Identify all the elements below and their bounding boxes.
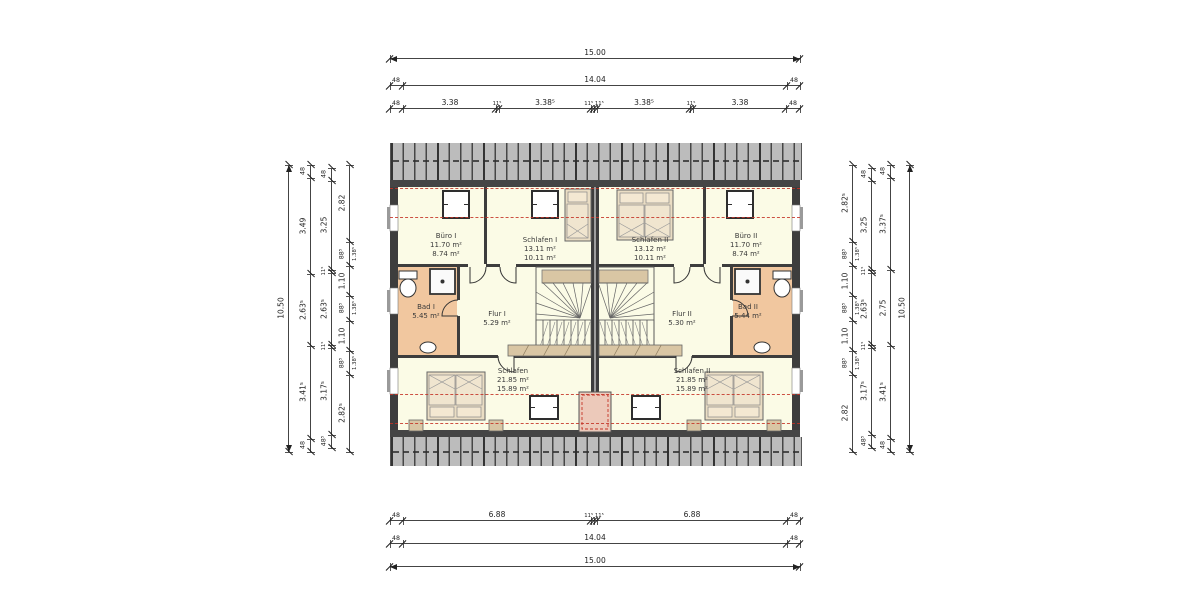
stair-line — [553, 283, 580, 318]
dim-chain-right-inner — [871, 168, 872, 448]
bed-pillow — [708, 407, 732, 417]
bed-pillow — [735, 407, 759, 417]
dim-label: 88⁵ — [339, 303, 346, 314]
dim-label: 3.49 — [299, 218, 308, 235]
room-label-flur-1: Flur I 5.29 m² — [483, 310, 510, 328]
floor-plan-canvas: Büro I 11.70 m² 8.74 m² Schlafen I 13.11… — [0, 0, 1200, 600]
room-area-floor: 21.85 m² — [674, 376, 711, 385]
dim-label: 48 — [880, 167, 887, 175]
dim-label: 48 — [300, 441, 307, 449]
dim-chain-right-detail — [852, 165, 853, 452]
dim-label: 88⁵ — [339, 358, 346, 369]
room-label-flur-2: Flur II 5.30 m² — [668, 310, 695, 328]
dim-label-secondary: 1.38⁵ — [352, 356, 358, 370]
dim-label: 48 — [392, 535, 400, 542]
dim-label: 3.41⁵ — [299, 382, 308, 402]
dim-arrow-top — [286, 165, 292, 172]
stair-line — [610, 283, 647, 318]
bed-pillow — [646, 193, 669, 203]
room-area-floor: 13.11 m² — [523, 245, 557, 254]
window-sill — [387, 370, 390, 392]
window-sill — [800, 290, 803, 312]
dim-label: 15.00 — [584, 556, 605, 565]
bed-mattress — [429, 375, 455, 405]
room-name: Flur II — [668, 310, 695, 319]
dim-label: 2.63⁵ — [860, 299, 869, 319]
wc-tank — [399, 271, 417, 279]
dim-label: 3.38⁵ — [634, 98, 654, 107]
wall — [692, 355, 792, 358]
stair-rect — [599, 270, 648, 283]
room-name: Schlafen II — [674, 367, 711, 376]
dim-label: 1.10 — [338, 273, 347, 290]
dim-label: 48 — [392, 100, 400, 107]
door-swing — [500, 267, 516, 283]
dim-label: 11⁵ 11⁵ — [584, 101, 603, 107]
window-sill — [800, 370, 803, 392]
dim-label: 48 — [392, 512, 400, 519]
dim-label: 48 — [790, 535, 798, 542]
dim-label: 11⁵ — [493, 101, 502, 107]
dim-label: 15.00 — [584, 48, 605, 57]
wall — [722, 264, 792, 267]
dim-label: 2.82⁵ — [338, 403, 347, 423]
dim-label: 88⁵ — [842, 358, 849, 369]
dim-label: 3.38⁵ — [535, 98, 555, 107]
window-sill — [387, 290, 390, 312]
wall — [730, 316, 733, 355]
dim-chain-left-inner — [331, 168, 332, 448]
dim-label: 6.88 — [489, 510, 506, 519]
dim-label: 48 — [392, 77, 400, 84]
staircase-right — [599, 267, 654, 355]
dim-label: 48 — [789, 100, 797, 107]
dim-label: 48 — [300, 167, 307, 175]
room-area-living: 8.74 m² — [730, 250, 762, 259]
room-label-schlafen-bottom-right: Schlafen II 21.85 m² 15.89 m² — [674, 367, 711, 394]
dim-chain-bottom-total — [390, 566, 800, 567]
dim-chain-left-detail — [349, 165, 350, 452]
room-area-living: 10.11 m² — [632, 254, 669, 263]
dim-chain-left-total — [288, 165, 289, 452]
room-label-schlafen-bottom-left: Schlafen 21.85 m² 15.89 m² — [497, 367, 529, 394]
room-area-floor: 5.45 m² — [412, 312, 439, 321]
bed-mattress — [619, 205, 644, 237]
gable-window — [390, 205, 398, 231]
washbasin — [754, 342, 770, 353]
dim-label-secondary: 1.38⁵ — [352, 301, 358, 315]
dim-label: 11⁵ — [321, 267, 327, 276]
dim-label: 2.75 — [879, 300, 888, 317]
dim-label: 3.38 — [732, 98, 749, 107]
dim-label: 10.50 — [898, 297, 907, 318]
dim-label: 48⁵ — [861, 436, 868, 447]
wall — [690, 264, 704, 267]
wall — [398, 355, 498, 358]
room-area-living: 8.74 m² — [430, 250, 462, 259]
bed-mattress — [707, 375, 733, 405]
room-label-bad-2: Bad II 5.44 m² — [734, 303, 761, 321]
room-area-living: 15.89 m² — [674, 385, 711, 394]
dim-label: 6.88 — [684, 510, 701, 519]
shower-drain — [441, 280, 445, 284]
dim-label: 48 — [790, 77, 798, 84]
bed-pillow — [457, 407, 481, 417]
room-name: Schlafen — [497, 367, 529, 376]
dim-label: 11⁵ — [687, 101, 696, 107]
wall — [457, 267, 460, 300]
room-name: Büro I — [430, 232, 462, 241]
room-area-floor: 13.12 m² — [632, 245, 669, 254]
wc-bowl — [774, 279, 790, 297]
window-sill — [387, 207, 390, 229]
door-swing — [442, 300, 458, 316]
dim-label: 3.17⁵ — [860, 381, 869, 401]
dim-label: 88⁵ — [842, 249, 849, 260]
stair-line — [610, 283, 637, 318]
dim-label: 1.10 — [841, 328, 850, 345]
bed-mattress — [645, 205, 670, 237]
dim-label-secondary: 1.38⁵ — [855, 356, 861, 370]
room-area-floor: 11.70 m² — [730, 241, 762, 250]
room-area-floor: 5.29 m² — [483, 319, 510, 328]
bed-mattress — [734, 375, 760, 405]
wall — [457, 316, 460, 355]
dim-label: 3.37⁵ — [879, 214, 888, 234]
washbasin — [420, 342, 436, 353]
room-name: Büro II — [730, 232, 762, 241]
staircase-left — [536, 267, 591, 355]
dim-label: 11⁵ — [861, 342, 867, 351]
bed-pillow — [430, 407, 454, 417]
gable-window — [792, 288, 800, 314]
dim-label: 2.82⁵ — [841, 193, 850, 213]
dim-label: 11⁵ — [321, 342, 327, 351]
bed-mattress — [567, 204, 588, 238]
wall — [398, 264, 468, 267]
dim-label-secondary: 1.38⁵ — [855, 247, 861, 261]
dim-chain-right-rooms — [890, 165, 891, 452]
wall — [703, 187, 706, 264]
dim-chain-top-total — [390, 58, 800, 59]
room-name: Schlafen II — [632, 236, 669, 245]
wc-tank — [773, 271, 791, 279]
dim-label: 2.82 — [338, 195, 347, 212]
dim-arrow-left — [390, 56, 397, 62]
wall — [730, 267, 733, 300]
dim-chain-top-shell — [390, 85, 800, 86]
window-sill — [800, 207, 803, 229]
sideboard — [599, 345, 682, 356]
dim-label: 2.63⁵ — [299, 300, 308, 320]
room-label-schlafen-1: Schlafen I 13.11 m² 10.11 m² — [523, 236, 557, 263]
door-swing — [674, 267, 690, 283]
dim-label: 3.25 — [860, 217, 869, 234]
roof-height-dashed-line — [390, 394, 800, 395]
room-name: Flur I — [483, 310, 510, 319]
room-name: Bad II — [734, 303, 761, 312]
dim-label: 3.25 — [320, 217, 329, 234]
dim-label: 88⁵ — [339, 249, 346, 260]
room-label-schlafen-2: Schlafen II 13.12 m² 10.11 m² — [632, 236, 669, 263]
dim-label: 1.10 — [338, 328, 347, 345]
shower-drain — [746, 280, 750, 284]
dim-label: 48 — [790, 512, 798, 519]
room-area-floor: 11.70 m² — [430, 241, 462, 250]
dim-label: 14.04 — [584, 533, 605, 542]
dim-label: 48 — [321, 170, 328, 178]
wall — [484, 187, 487, 264]
dim-arrow-right — [793, 564, 800, 570]
room-area-floor: 5.44 m² — [734, 312, 761, 321]
dim-chain-bottom-shell — [390, 543, 800, 544]
dim-label: 10.50 — [277, 297, 286, 318]
room-label-buero-1: Büro I 11.70 m² 8.74 m² — [430, 232, 462, 259]
roof-height-dashed-line — [390, 423, 800, 424]
dim-chain-left-rooms — [310, 165, 311, 452]
room-area-living: 15.89 m² — [497, 385, 529, 394]
door-swing — [470, 267, 486, 283]
dim-label: 2.63⁵ — [320, 299, 329, 319]
room-area-floor: 5.30 m² — [668, 319, 695, 328]
room-label-bad-1: Bad I 5.45 m² — [412, 303, 439, 321]
dim-arrow-top — [907, 165, 913, 172]
sideboard — [508, 345, 591, 356]
bed-pillow — [568, 192, 587, 202]
dim-label-secondary: 1.38⁵ — [352, 247, 358, 261]
door-swing — [704, 267, 720, 283]
dim-arrow-bottom — [286, 445, 292, 452]
plan-drawing — [0, 0, 1200, 600]
gable-window — [792, 205, 800, 231]
dim-label: 88⁵ — [842, 303, 849, 314]
dim-label: 11⁵ 11⁵ — [584, 513, 603, 519]
dim-label: 3.41⁵ — [879, 382, 888, 402]
wc-bowl — [400, 279, 416, 297]
wall — [486, 264, 500, 267]
roof-height-dashed-line — [390, 217, 800, 218]
gable-window — [390, 368, 398, 394]
roof-height-dashed-line — [390, 188, 800, 189]
dim-label: 48⁵ — [321, 436, 328, 447]
bed-mattress — [456, 375, 482, 405]
chimney-block — [579, 392, 611, 432]
room-label-buero-2: Büro II 11.70 m² 8.74 m² — [730, 232, 762, 259]
room-area-living: 10.11 m² — [523, 254, 557, 263]
dim-arrow-left — [390, 564, 397, 570]
dim-label: 1.10 — [841, 273, 850, 290]
dim-label: 2.82 — [841, 405, 850, 422]
stair-rect — [542, 270, 591, 283]
dim-chain-right-total — [909, 165, 910, 452]
gable-window — [792, 368, 800, 394]
dim-label: 11⁵ — [861, 267, 867, 276]
room-area-floor: 21.85 m² — [497, 376, 529, 385]
gable-window — [390, 288, 398, 314]
bed-pillow — [620, 193, 643, 203]
room-name: Schlafen I — [523, 236, 557, 245]
room-name: Bad I — [412, 303, 439, 312]
dim-label: 48 — [861, 170, 868, 178]
dim-arrow-bottom — [907, 445, 913, 452]
dim-label: 48 — [880, 441, 887, 449]
dim-arrow-right — [793, 56, 800, 62]
dim-label: 3.17⁵ — [320, 381, 329, 401]
dim-label: 14.04 — [584, 75, 605, 84]
stair-line — [543, 283, 580, 318]
dim-label: 3.38 — [442, 98, 459, 107]
